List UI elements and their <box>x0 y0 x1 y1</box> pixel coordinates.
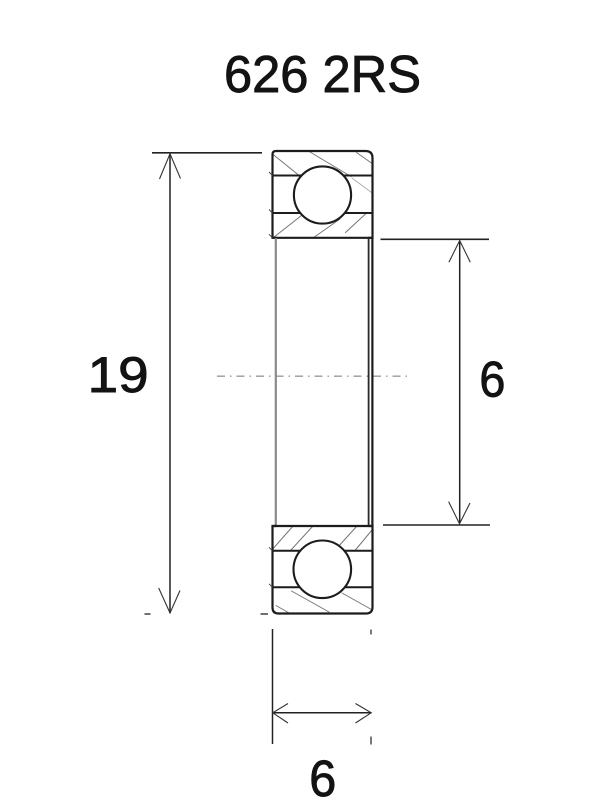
svg-text:6: 6 <box>479 351 505 407</box>
svg-text:626 2RS: 626 2RS <box>224 46 421 104</box>
svg-text:19: 19 <box>88 347 149 403</box>
svg-text:6: 6 <box>309 750 336 807</box>
